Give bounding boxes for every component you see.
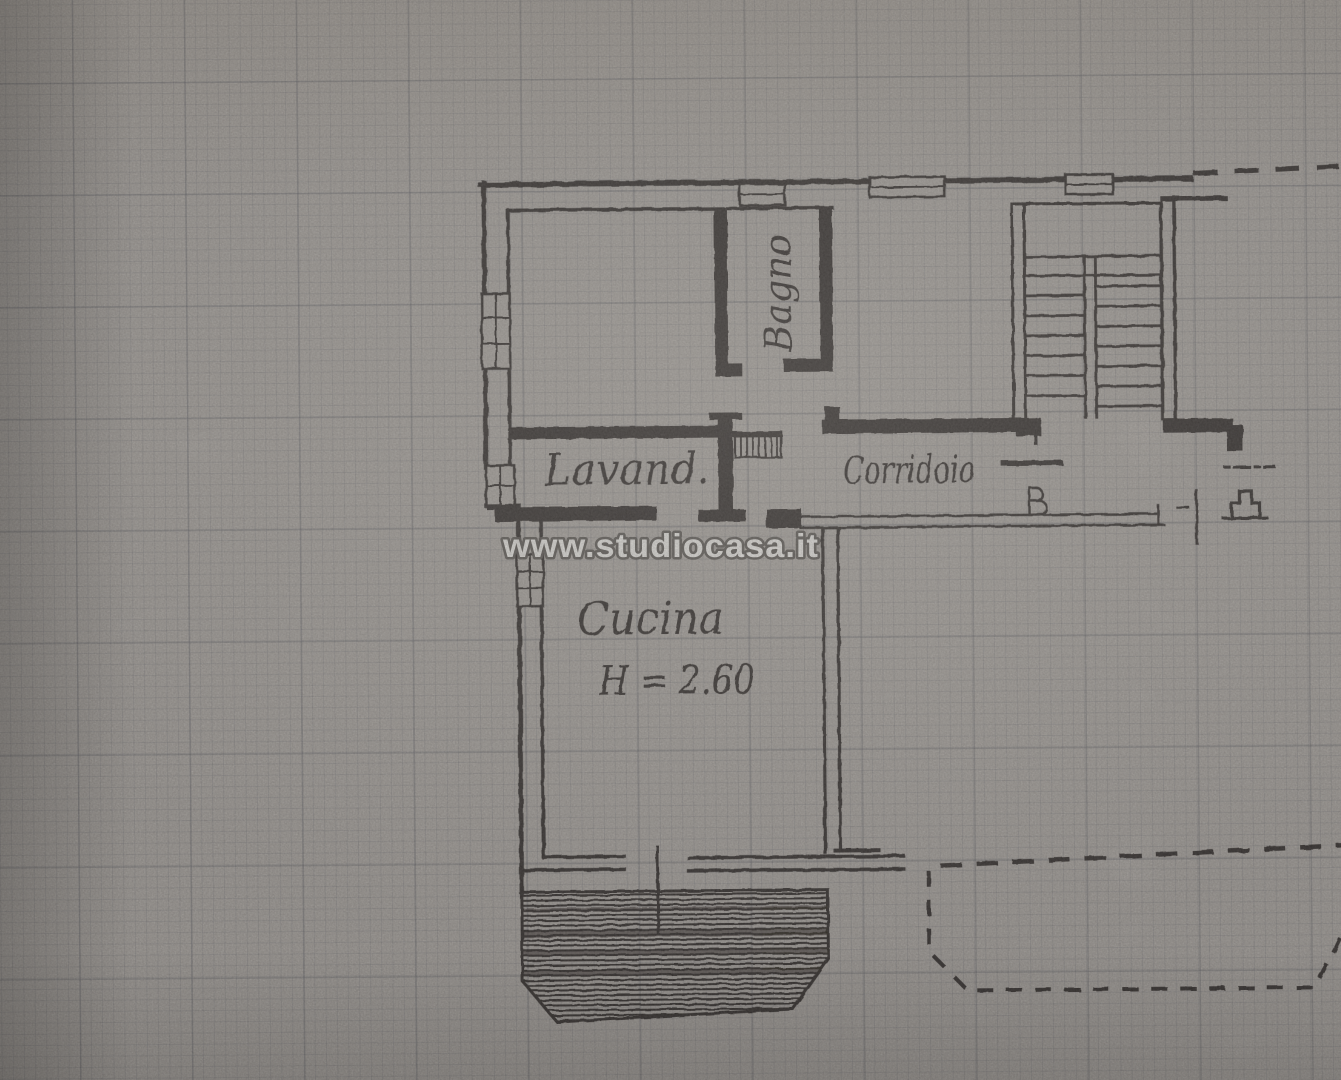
laundry-top-wall xyxy=(509,426,719,440)
window-left-upper xyxy=(482,293,511,368)
stair-bottom-right-wall xyxy=(1163,418,1233,433)
laundry-bottom-wall xyxy=(494,506,656,521)
watermark-text: www.studiocasa.it xyxy=(502,527,819,564)
bagno-left-wall-foot xyxy=(715,363,742,376)
corridor-pier-cap-top xyxy=(709,412,742,419)
threshold-symbol xyxy=(1223,491,1266,518)
floor-plan-drawing: Bagno Lavand. Corridoio Cucina H = 2.60 … xyxy=(0,0,1341,1080)
kitchen-bottom-wall xyxy=(522,854,904,872)
dashed-balcony-top-edge xyxy=(940,845,1341,866)
balcony-icon xyxy=(504,890,835,1023)
corridor-pier xyxy=(718,414,734,517)
bagno-right-wall xyxy=(819,207,833,367)
label-corridoio: Corridoio xyxy=(843,447,975,492)
corridor-bottom-stub xyxy=(767,509,802,528)
door-hinge-symbol xyxy=(1029,488,1046,515)
bagno-left-wall xyxy=(714,208,728,368)
corridor-top-wall-bump xyxy=(825,407,840,422)
corridor-pier-cap-bottom xyxy=(699,509,746,521)
stair-treads-left-flight xyxy=(1025,295,1086,396)
stair-left-wall xyxy=(1012,204,1026,422)
label-lavanderia: Lavand. xyxy=(543,444,710,496)
dashed-balcony-outline xyxy=(929,867,1341,991)
corridor-top-wall-right xyxy=(822,418,1025,434)
window-top-bagno xyxy=(740,184,785,205)
top-inner-wall-line xyxy=(509,208,832,211)
label-cucina: Cucina xyxy=(577,591,723,646)
bagno-right-wall-foot xyxy=(783,359,833,372)
label-bagno: Bagno xyxy=(756,234,800,353)
corridor-bottom-wall xyxy=(801,506,1164,528)
window-left-laundry xyxy=(486,465,514,505)
radiator-icon xyxy=(731,434,783,457)
window-top-stairs xyxy=(1066,174,1113,194)
dashed-line-top-right xyxy=(1194,166,1339,173)
kitchen-right-wall xyxy=(823,529,841,853)
dashed-outlines xyxy=(923,166,1341,991)
window-top-room xyxy=(870,177,945,198)
staircase-icon xyxy=(1012,197,1227,422)
stair-top-wall xyxy=(1012,203,1161,204)
floor-plan-photo: Bagno Lavand. Corridoio Cucina H = 2.60 … xyxy=(0,0,1341,1080)
room-labels: Bagno Lavand. Corridoio Cucina H = 2.60 xyxy=(541,232,977,705)
label-kitchen-height: H = 2.60 xyxy=(598,657,755,704)
stair-stringer xyxy=(1084,256,1096,417)
stair-treads-right-flight xyxy=(1096,286,1163,407)
stair-landing-treads xyxy=(1024,256,1161,276)
stair-bottom-right-wall-leg xyxy=(1227,425,1243,451)
stair-top-stub xyxy=(1163,198,1225,199)
